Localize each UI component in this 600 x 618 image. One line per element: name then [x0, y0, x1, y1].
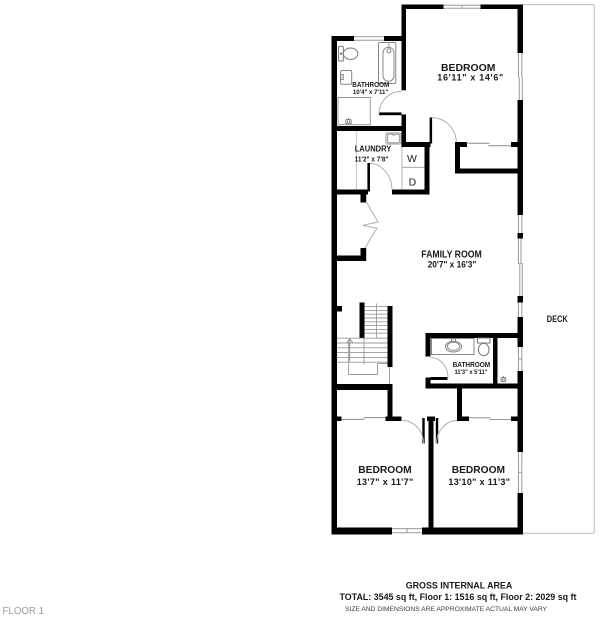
svg-text:13'7" x 11'7": 13'7" x 11'7": [357, 477, 414, 487]
svg-text:W: W: [407, 153, 417, 165]
svg-text:20'7" x 16'3": 20'7" x 16'3": [428, 260, 477, 270]
svg-text:16'11" x 14'6": 16'11" x 14'6": [437, 72, 503, 82]
svg-text:BEDROOM: BEDROOM: [452, 465, 505, 476]
svg-text:13'10" x 11'3": 13'10" x 11'3": [448, 477, 510, 487]
svg-text:BATHROOM: BATHROOM: [352, 82, 389, 89]
svg-text:11'3" x 5'11": 11'3" x 5'11": [454, 369, 487, 376]
svg-text:BATHROOM: BATHROOM: [453, 362, 491, 369]
svg-text:10'4" x 7'11": 10'4" x 7'11": [353, 89, 389, 96]
svg-text:D: D: [409, 176, 417, 188]
svg-text:DECK: DECK: [547, 314, 568, 324]
svg-text:SIZE AND DIMENSIONS ARE APPROX: SIZE AND DIMENSIONS ARE APPROXIMATE ACTU…: [345, 606, 548, 613]
svg-text:GROSS INTERNAL AREA: GROSS INTERNAL AREA: [406, 581, 513, 591]
svg-text:BEDROOM: BEDROOM: [358, 465, 411, 476]
svg-text:LAUNDRY: LAUNDRY: [355, 145, 392, 154]
svg-text:FLOOR 1: FLOOR 1: [3, 606, 45, 617]
svg-text:TOTAL: 3545 sq ft, Floor 1: 15: TOTAL: 3545 sq ft, Floor 1: 1516 sq ft, …: [340, 592, 577, 602]
svg-text:11'2" x 7'8": 11'2" x 7'8": [355, 156, 389, 163]
